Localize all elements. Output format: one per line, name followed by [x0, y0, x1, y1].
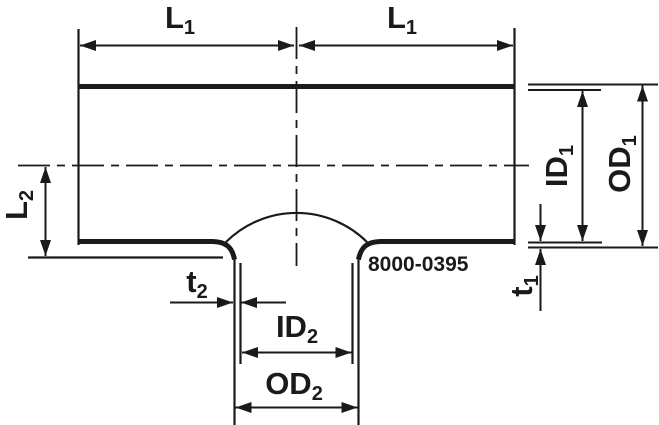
dimension-lines — [46, 46, 643, 408]
label-t2: t2 — [186, 264, 207, 303]
tee-dimension-diagram: L1 L1 L2 ID1 OD1 t1 t2 ID2 OD2 8000-0395 — [0, 0, 659, 425]
label-od2: OD2 — [265, 366, 323, 405]
technical-drawing-tee-fitting: L1 L1 L2 ID1 OD1 t1 t2 ID2 OD2 8000-0395 — [0, 0, 659, 425]
label-od1: OD1 — [602, 135, 641, 193]
label-l1-left: L1 — [165, 0, 195, 39]
label-id2: ID2 — [276, 309, 318, 348]
centerlines — [18, 27, 529, 266]
label-id1: ID1 — [539, 145, 578, 187]
label-l1-right: L1 — [387, 0, 417, 39]
dimension-labels: L1 L1 L2 ID1 OD1 t1 t2 ID2 OD2 — [0, 0, 641, 405]
part-number: 8000-0395 — [368, 253, 469, 276]
label-t1: t1 — [504, 275, 543, 296]
label-l2: L2 — [0, 190, 38, 220]
